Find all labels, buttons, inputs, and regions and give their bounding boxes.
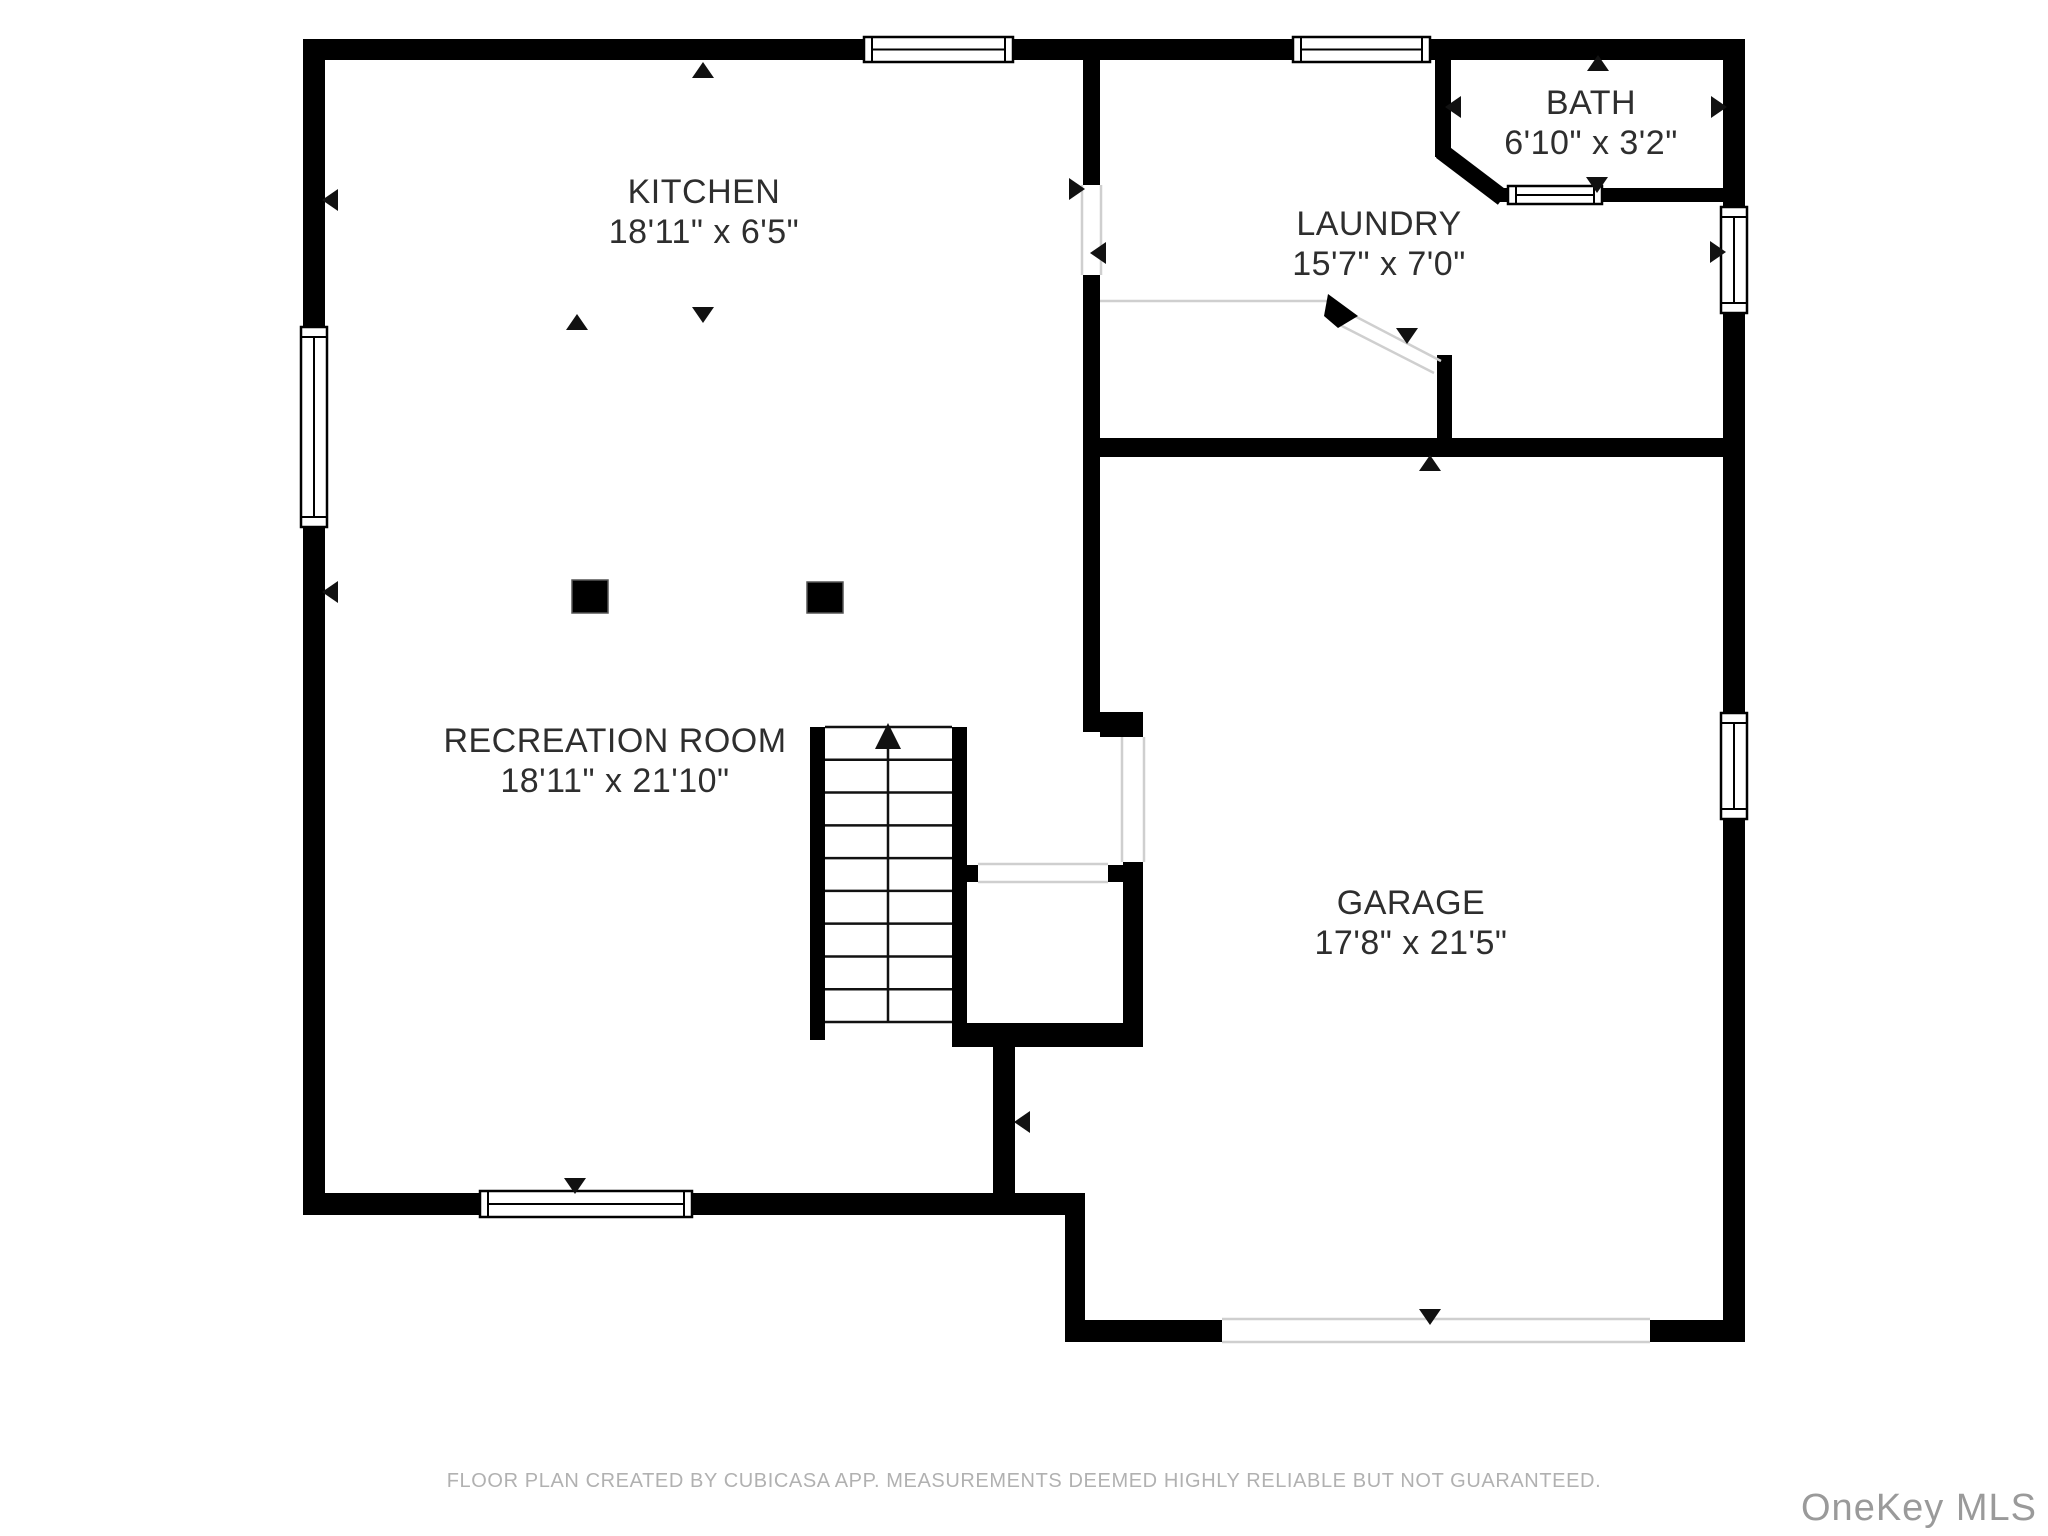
up-arrow-icon [692,62,714,78]
room-dims-garage: 17'8" x 21'5" [1315,924,1508,962]
onekey-mls-watermark: OneKey MLS [1801,1487,2037,1530]
diagonal-wall [1441,151,1503,198]
wall [1602,188,1723,202]
wall [1065,1215,1085,1342]
floor-plan-page: KITCHEN18'11" x 6'5"LAUNDRY15'7" x 7'0"B… [0,0,2048,1536]
wall [1650,1320,1745,1342]
wall [303,1193,1085,1215]
door-opening [1121,737,1145,862]
room-dims-laundry: 15'7" x 7'0" [1292,245,1466,283]
wall [963,865,978,882]
column [572,580,608,613]
room-dims-recreation-room: 18'11" x 21'10" [500,762,729,800]
door-leaf [1324,294,1358,328]
door-opening [978,863,1108,883]
room-label-laundry: LAUNDRY [1296,205,1461,243]
wall [1123,862,1143,1023]
wall [952,727,967,1047]
door-opening [1222,1318,1650,1343]
footer-disclaimer: FLOOR PLAN CREATED BY CUBICASA APP. MEAS… [0,1470,2048,1493]
wall [993,1047,1015,1215]
wall [303,39,325,1215]
room-dims-kitchen: 18'11" x 6'5" [609,213,799,251]
down-arrow-icon [1396,328,1418,344]
left-arrow-icon [1014,1111,1030,1133]
wall [1098,438,1745,457]
wall [1083,60,1100,185]
door-opening [1081,185,1102,275]
up-arrow-icon [566,314,588,330]
down-arrow-icon [692,307,714,323]
wall [1108,865,1123,882]
wall [303,39,1745,60]
wall [1435,39,1451,157]
wall [1437,355,1452,438]
room-label-garage: GARAGE [1337,884,1485,922]
wall [1083,275,1100,732]
wall [952,1023,1143,1047]
room-label-recreation-room: RECREATION ROOM [443,722,786,760]
wall [1100,712,1143,737]
room-label-bath: BATH [1546,84,1636,122]
wall [1085,1320,1222,1342]
wall [810,727,825,1040]
column [807,582,843,613]
room-label-kitchen: KITCHEN [628,173,781,211]
floor-plan-canvas: KITCHEN18'11" x 6'5"LAUNDRY15'7" x 7'0"B… [0,0,2048,1536]
room-dims-bath: 6'10" x 3'2" [1504,124,1678,162]
up-arrow-icon [1419,455,1441,471]
